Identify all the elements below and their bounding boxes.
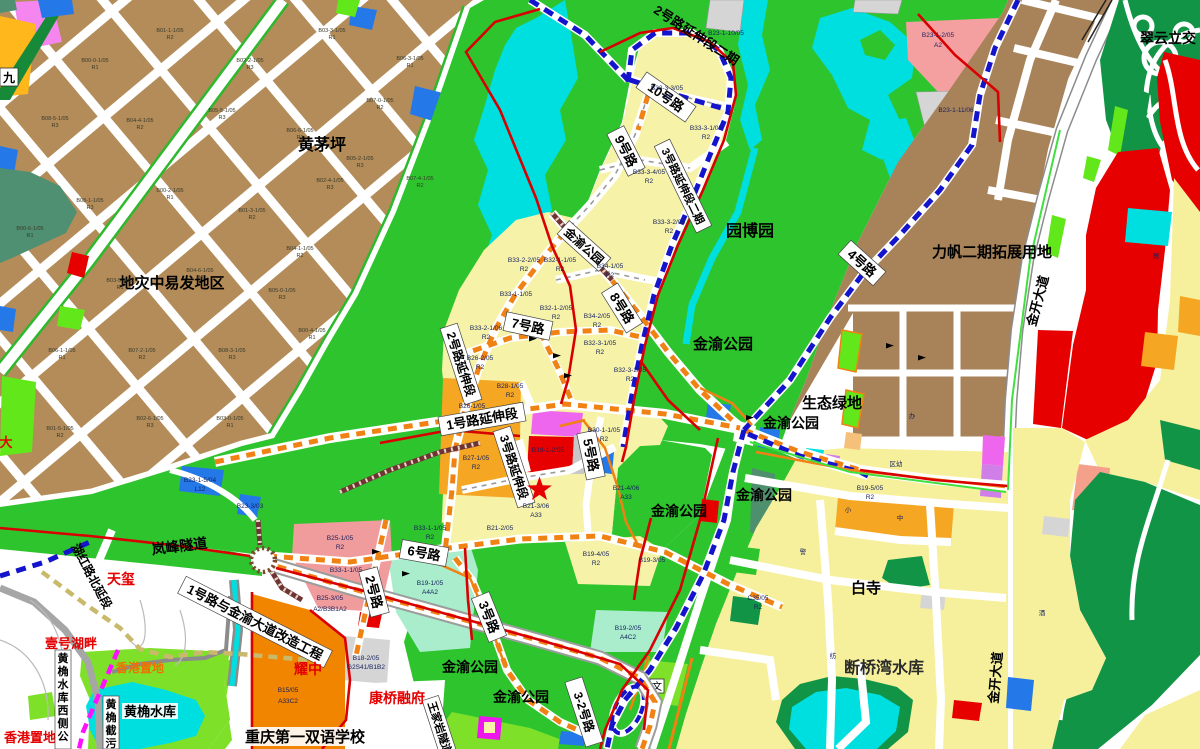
svg-text:小: 小 [845,505,852,514]
svg-text:B21-3/06: B21-3/06 [523,503,550,510]
svg-text:B07-2-1/05: B07-2-1/05 [128,348,155,354]
svg-text:B04-6-1/05: B04-6-1/05 [186,268,213,274]
svg-text:B07-0-1/05: B07-0-1/05 [366,98,393,104]
svg-text:B03-0-1/05: B03-0-1/05 [216,416,243,422]
svg-text:R3: R3 [278,295,285,301]
svg-text:B32-1-1/05: B32-1-1/05 [544,257,577,264]
svg-text:B23-1-5/04: B23-1-5/04 [184,477,217,484]
svg-text:金渝公园: 金渝公园 [735,487,792,503]
svg-text:地灾中易发地区: 地灾中易发地区 [119,274,224,292]
svg-text:R3: R3 [218,115,225,121]
svg-text:B32-3-1/05: B32-3-1/05 [584,340,617,347]
svg-text:B28-1/05: B28-1/05 [497,383,524,390]
svg-text:B19-2/05: B19-2/05 [615,625,642,632]
svg-text:B19-3/05: B19-3/05 [639,557,666,564]
svg-text:B33-1-1/05: B33-1-1/05 [330,567,363,574]
svg-text:R2: R2 [593,322,602,329]
svg-text:R2: R2 [336,544,345,551]
svg-text:R2: R2 [606,272,615,279]
svg-text:B33-3-1/05: B33-3-1/05 [690,125,723,132]
svg-text:B23-1-11/06: B23-1-11/06 [938,107,974,114]
svg-text:香港置地: 香港置地 [3,730,56,745]
svg-text:白寺: 白寺 [851,579,881,597]
svg-text:黄茅坪: 黄茅坪 [298,135,346,154]
svg-text:园博园: 园博园 [726,221,774,240]
svg-text:R2: R2 [482,334,491,341]
svg-text:B19-1-2/05: B19-1-2/05 [532,447,565,454]
svg-text:金渝公园: 金渝公园 [492,689,549,705]
svg-text:R2: R2 [376,105,383,111]
svg-text:R1: R1 [328,35,335,41]
svg-text:R2: R2 [472,464,481,471]
svg-text:金渝公园: 金渝公园 [692,335,753,353]
svg-text:R3: R3 [246,65,253,71]
svg-text:R2: R2 [248,215,255,221]
svg-text:R3: R3 [356,163,363,169]
svg-text:R2: R2 [296,253,303,259]
svg-text:办: 办 [909,411,916,420]
svg-text:R2: R2 [592,560,601,567]
svg-text:B19-1/05: B19-1/05 [417,580,444,587]
svg-text:B32-1-2/05: B32-1-2/05 [540,305,573,312]
svg-text:A2/B3B1A2: A2/B3B1A2 [313,606,347,613]
svg-text:R3: R3 [228,355,235,361]
svg-text:B33-1-1/05: B33-1-1/05 [414,525,447,532]
svg-text:R2: R2 [626,376,635,383]
svg-text:R1: R1 [58,355,65,361]
svg-text:断桥湾水库: 断桥湾水库 [844,658,924,677]
svg-text:A33: A33 [530,512,542,519]
svg-text:R3: R3 [86,205,93,211]
svg-text:翠云立交: 翠云立交 [1140,30,1196,46]
svg-text:R2: R2 [552,314,561,321]
svg-text:B32-3-2/05: B32-3-2/05 [614,367,647,374]
svg-text:居: 居 [1153,252,1160,260]
svg-text:壹号湖畔: 壹号湖畔 [45,636,97,651]
svg-text:G2S41/B1B2: G2S41/B1B2 [347,664,385,671]
svg-text:天玺: 天玺 [107,571,135,587]
svg-text:R2: R2 [663,94,672,101]
svg-text:B01-5-1/05: B01-5-1/05 [46,426,73,432]
svg-text:B02-6-1/05: B02-6-1/05 [136,416,163,422]
svg-text:R2: R2 [600,436,609,443]
svg-text:B30-1-1/05: B30-1-1/05 [588,427,621,434]
svg-text:康桥融府: 康桥融府 [369,690,425,706]
svg-text:B19-4/05: B19-4/05 [583,551,610,558]
svg-text:A33C2: A33C2 [278,698,298,705]
svg-text:R1: R1 [26,233,33,239]
svg-text:B19-5/05: B19-5/05 [857,485,884,492]
svg-text:B33-3-2/05: B33-3-2/05 [653,219,686,226]
svg-text:力帆二期拓展用地: 力帆二期拓展用地 [932,243,1052,261]
svg-text:B25-3/05: B25-3/05 [317,595,344,602]
svg-text:B03-5-1/05: B03-5-1/05 [106,278,133,284]
svg-text:R1: R1 [308,335,315,341]
svg-text:B07-4-1/05: B07-4-1/05 [406,176,433,182]
svg-text:A4C2: A4C2 [620,634,637,641]
svg-text:黄桷水库: 黄桷水库 [124,704,176,719]
svg-text:大: 大 [0,435,13,450]
svg-text:B23-3/03: B23-3/03 [237,503,264,510]
svg-text:B27-1/05: B27-1/05 [463,455,490,462]
svg-text:R1: R1 [296,135,303,141]
svg-text:B33-3-3/05: B33-3-3/05 [651,85,684,92]
svg-text:R2: R2 [866,494,875,501]
svg-text:A33: A33 [620,494,632,501]
svg-text:酒: 酒 [1039,609,1046,617]
svg-text:B05-5-1/05: B05-5-1/05 [208,108,235,114]
svg-text:R1: R1 [166,195,173,201]
svg-text:B04-1-1/05: B04-1-1/05 [286,246,313,252]
svg-text:B01-1-1/05: B01-1-1/05 [156,28,183,34]
svg-text:警: 警 [800,547,807,556]
svg-text:B02-4-1/05: B02-4-1/05 [316,178,343,184]
svg-text:B33-1-1/05: B33-1-1/05 [500,291,533,298]
svg-text:R2: R2 [138,355,145,361]
svg-text:R2: R2 [556,266,565,273]
svg-text:B01-3-1/05: B01-3-1/05 [238,208,265,214]
svg-text:B06-6-1/05: B06-6-1/05 [286,128,313,134]
svg-text:B34-1/05: B34-1/05 [597,263,624,270]
svg-text:B03-3-1/05: B03-3-1/05 [318,28,345,34]
svg-text:B33-2-2/05: B33-2-2/05 [508,257,541,264]
svg-text:R1: R1 [91,65,98,71]
svg-text:C35/05: C35/05 [748,595,769,602]
svg-text:L12: L12 [195,486,206,493]
svg-text:B06-1-1/05: B06-1-1/05 [48,348,75,354]
svg-text:R2: R2 [426,534,435,541]
svg-text:九: 九 [2,70,15,85]
svg-text:R2: R2 [476,364,485,371]
svg-text:R1: R1 [116,285,123,291]
svg-text:B23-1-2/05: B23-1-2/05 [922,32,955,39]
svg-text:R3: R3 [326,185,333,191]
svg-text:B25-1/05: B25-1/05 [327,535,354,542]
svg-text:R2: R2 [520,266,529,273]
svg-text:R1: R1 [406,63,413,69]
svg-text:R2: R2 [665,228,674,235]
svg-text:B06-3-1/05: B06-3-1/05 [396,56,423,62]
svg-text:金渝公园: 金渝公园 [441,659,498,675]
svg-text:B21-2/05: B21-2/05 [487,525,514,532]
svg-text:纺: 纺 [830,651,837,660]
svg-text:R3: R3 [146,423,153,429]
svg-text:B26-1/05: B26-1/05 [459,403,486,410]
svg-text:B33-2-1/06: B33-2-1/06 [470,325,503,332]
svg-text:B21-4/06: B21-4/06 [613,485,640,492]
svg-text:B08-1-1/05: B08-1-1/05 [76,198,103,204]
svg-text:R2: R2 [754,604,763,611]
svg-text:A2: A2 [934,42,942,49]
svg-text:金渝公园: 金渝公园 [650,503,707,519]
svg-text:B26-2/05: B26-2/05 [467,355,494,362]
svg-text:金渝公园: 金渝公园 [762,415,819,431]
svg-text:R2: R2 [506,392,515,399]
svg-text:R2: R2 [136,125,143,131]
svg-text:B00-0-1/05: B00-0-1/05 [81,58,108,64]
svg-text:R2: R2 [596,349,605,356]
svg-text:黄桷水库西侧公: 黄桷水库西侧公 [58,651,70,743]
svg-text:B04-4-1/05: B04-4-1/05 [126,118,153,124]
svg-text:B34-2/05: B34-2/05 [584,313,611,320]
svg-text:重庆第一双语学校: 重庆第一双语学校 [245,728,366,746]
svg-text:R1: R1 [226,423,233,429]
svg-text:B33-3-4/05: B33-3-4/05 [633,169,666,176]
svg-text:黄桷截污: 黄桷截污 [106,697,117,749]
svg-text:区幼: 区幼 [890,459,903,468]
svg-text:R2: R2 [645,178,654,185]
svg-text:耀中: 耀中 [294,661,322,677]
svg-text:生态绿地: 生态绿地 [802,394,862,412]
svg-text:A4A2: A4A2 [422,589,438,596]
svg-text:B00-6-1/05: B00-6-1/05 [16,226,43,232]
svg-text:B05-0-1/05: B05-0-1/05 [268,288,295,294]
svg-text:B00-4-1/05: B00-4-1/05 [298,328,325,334]
svg-text:B08-5-1/05: B08-5-1/05 [41,116,68,122]
svg-text:B23-1-10/05: B23-1-10/05 [708,30,744,37]
svg-text:R3: R3 [51,123,58,129]
svg-text:中: 中 [897,513,904,522]
svg-text:B00-2-1/05: B00-2-1/05 [156,188,183,194]
svg-text:R2: R2 [416,183,423,189]
svg-text:R2: R2 [702,134,711,141]
svg-text:R2: R2 [56,433,63,439]
svg-text:R2: R2 [196,275,203,281]
svg-text:香港置地: 香港置地 [115,660,164,675]
svg-text:R2: R2 [166,35,173,41]
svg-text:B02-2-1/05: B02-2-1/05 [236,58,263,64]
svg-text:B18-2/05: B18-2/05 [353,655,380,662]
svg-text:B08-3-1/05: B08-3-1/05 [218,348,245,354]
svg-text:B15/05: B15/05 [278,687,299,694]
svg-text:B05-2-1/05: B05-2-1/05 [346,156,373,162]
